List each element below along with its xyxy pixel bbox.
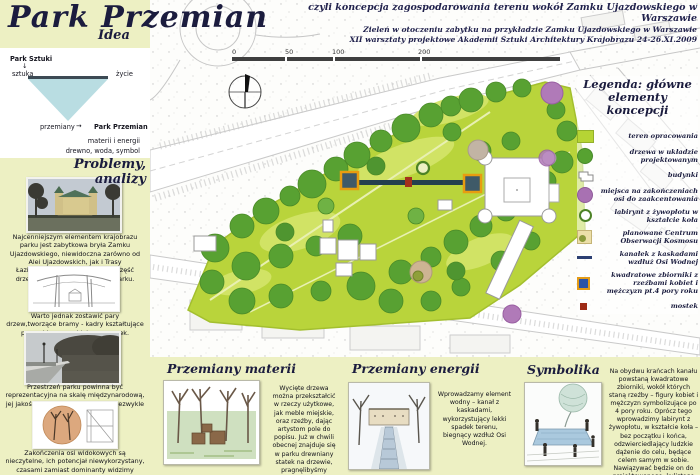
legend-item-budynki: budynki bbox=[577, 169, 698, 182]
materii-text: Wycięte drzewa można przekształcić w rze… bbox=[270, 385, 338, 475]
basin-east bbox=[464, 175, 481, 192]
arrow-down-icon: ↓ bbox=[22, 62, 28, 70]
gate-sketch-image bbox=[29, 267, 119, 311]
tree-circle-icon bbox=[577, 148, 597, 164]
svg-text:0: 0 bbox=[232, 48, 236, 56]
bridge-square-icon bbox=[577, 303, 597, 310]
svg-text:50: 50 bbox=[285, 48, 293, 56]
kosmos-dome bbox=[413, 271, 423, 281]
building-outline-icon bbox=[577, 169, 597, 182]
park-sztuki-label: Park Sztuki bbox=[10, 55, 52, 63]
header-line1: czyli koncepcja zagospodarowania terenu … bbox=[297, 2, 697, 24]
tan-marker bbox=[468, 140, 488, 160]
energii-text: Wprowadzamy element wodny – kanał z kask… bbox=[437, 391, 512, 448]
przemiany-label: przemiany bbox=[40, 123, 75, 131]
header: czyli koncepcja zagospodarowania terenu … bbox=[297, 2, 697, 44]
poster-title: Park Przemian bbox=[8, 0, 308, 35]
axis-accent-north bbox=[541, 82, 563, 104]
road-photo bbox=[24, 331, 121, 385]
labyrinth-ring-icon bbox=[577, 209, 597, 222]
materii-sketch bbox=[163, 380, 260, 465]
legend-item-miejsca: miejsca na zakończeniach osi do zaakcent… bbox=[577, 187, 698, 203]
materii-energii-label: materii i energii bbox=[55, 137, 140, 145]
materii-sketch-image bbox=[164, 381, 259, 464]
legend-items: teren opracowania drzewa w układzie proj… bbox=[577, 130, 698, 312]
legend-item-drzewa: drzewa w układzie projektowanym bbox=[577, 148, 698, 164]
legend-item-zbiorniki: kwadratowe zbiorniki z rzeźbami kobiet i… bbox=[577, 271, 698, 295]
road-photo-image bbox=[26, 333, 119, 383]
canal-bar-icon bbox=[577, 256, 597, 259]
energii-heading: Przemiany energii bbox=[352, 361, 480, 376]
legend: Legenda: główne elementy koncepcji teren… bbox=[577, 76, 698, 314]
header-line3: XII warsztaty projektowe Akademii Sztuki… bbox=[297, 35, 697, 44]
zycie-label: życie bbox=[116, 70, 133, 78]
basin-west bbox=[341, 172, 358, 189]
symbolika-text: Na obydwu krańcach kanału powstaną kwadr… bbox=[608, 368, 699, 475]
kosmos-square-icon bbox=[577, 230, 597, 244]
bridge-marker bbox=[405, 177, 412, 187]
legend-item-teren: teren opracowania bbox=[577, 130, 698, 143]
axis-sketch bbox=[32, 401, 118, 449]
energii-sketch-image bbox=[349, 383, 429, 469]
materii-heading: Przemiany materii bbox=[167, 361, 296, 376]
axis-sketch-image bbox=[33, 402, 117, 448]
idea-triangle bbox=[28, 79, 108, 121]
idea-heading: Idea bbox=[98, 28, 130, 43]
drewno-woda-label: drewno, woda, symbol bbox=[45, 147, 140, 155]
arrow-right-icon: → bbox=[76, 122, 82, 130]
basin-square-icon bbox=[577, 277, 597, 290]
park-przemian-label: Park Przemian bbox=[94, 123, 148, 131]
problemy-text4: Zakończenia osi widokowych są nieczyteln… bbox=[5, 449, 145, 475]
gate-sketch bbox=[28, 266, 120, 312]
poster: 0 50 100 200 czyli koncepcja zagospodaro… bbox=[0, 0, 700, 475]
labyrinth-marker bbox=[417, 162, 429, 174]
bottom-strip: Przemiany materii bbox=[150, 357, 700, 475]
legend-item-kanalek: kanałek z kaskadami wzdłuż Osi Wodnej bbox=[577, 250, 698, 266]
purple-circle-icon bbox=[577, 187, 597, 203]
svg-text:200: 200 bbox=[418, 48, 430, 56]
header-line2: Zieleń w otoczeniu zabytku na przykładzi… bbox=[297, 25, 697, 34]
svg-text:100: 100 bbox=[332, 48, 344, 56]
axis-accent-east bbox=[539, 150, 555, 166]
symbolika-heading: Symbolika bbox=[527, 362, 600, 377]
legend-title: Legenda: główne elementy koncepcji bbox=[577, 78, 698, 118]
legend-item-labirynt: labirynt z żywopłotu w kształcie koła bbox=[577, 208, 698, 224]
green-square-icon bbox=[577, 130, 597, 143]
symbolika-sketch bbox=[524, 382, 602, 466]
symbolika-sketch-image bbox=[525, 383, 601, 465]
problemy-heading: Problemy, analizy bbox=[28, 157, 146, 187]
legend-item-kosmos: planowane Centrum Obserwacji Kosmosu bbox=[577, 229, 698, 245]
axis-accent-south bbox=[503, 305, 521, 323]
legend-item-mostek: mostek bbox=[577, 300, 698, 312]
energii-sketch bbox=[348, 382, 430, 470]
